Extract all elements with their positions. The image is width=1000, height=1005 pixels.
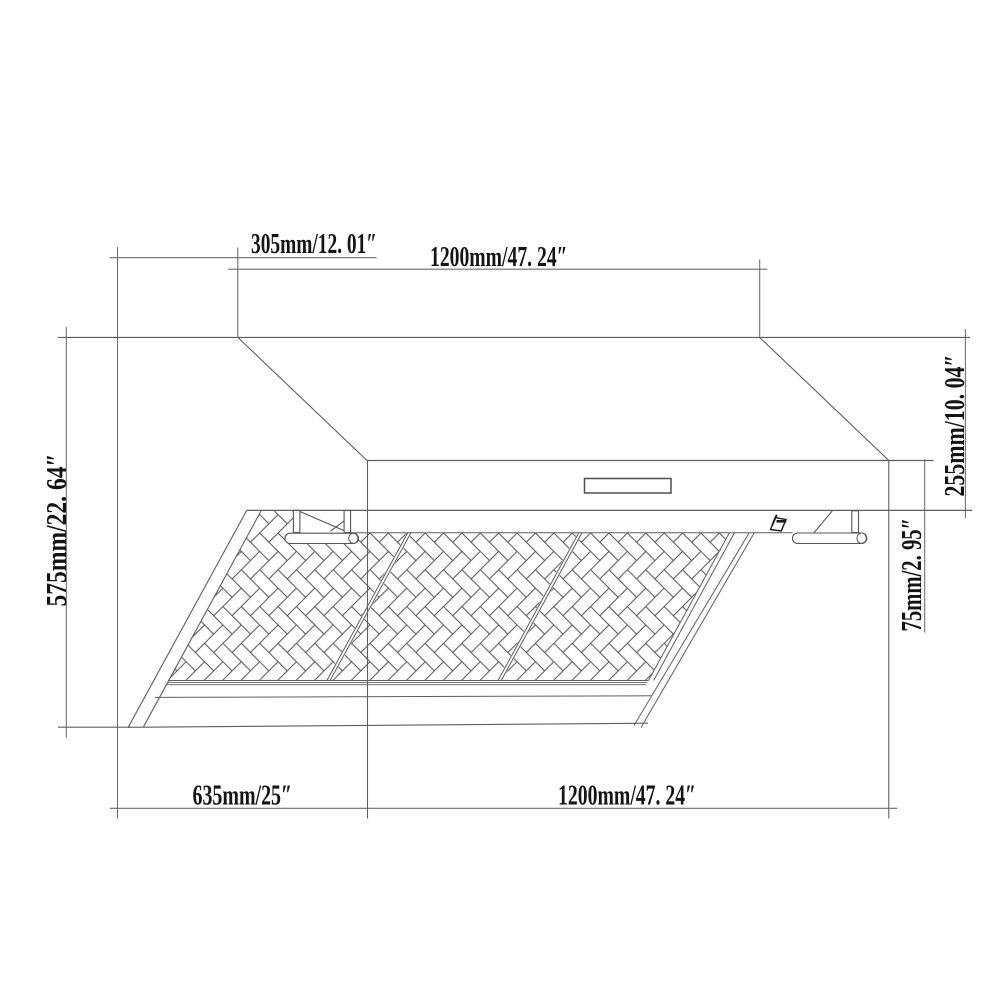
svg-text:305mm/12. 01″: 305mm/12. 01″ <box>251 229 377 260</box>
svg-text:255mm/10. 04″: 255mm/10. 04″ <box>940 355 971 497</box>
svg-text:1200mm/47. 24″: 1200mm/47. 24″ <box>430 242 568 273</box>
svg-text:75mm/2. 95″: 75mm/2. 95″ <box>897 518 928 632</box>
svg-text:575mm/22. 64″: 575mm/22. 64″ <box>42 454 73 607</box>
svg-text:1200mm/47. 24″: 1200mm/47. 24″ <box>558 781 696 812</box>
svg-text:635mm/25″: 635mm/25″ <box>193 781 293 812</box>
